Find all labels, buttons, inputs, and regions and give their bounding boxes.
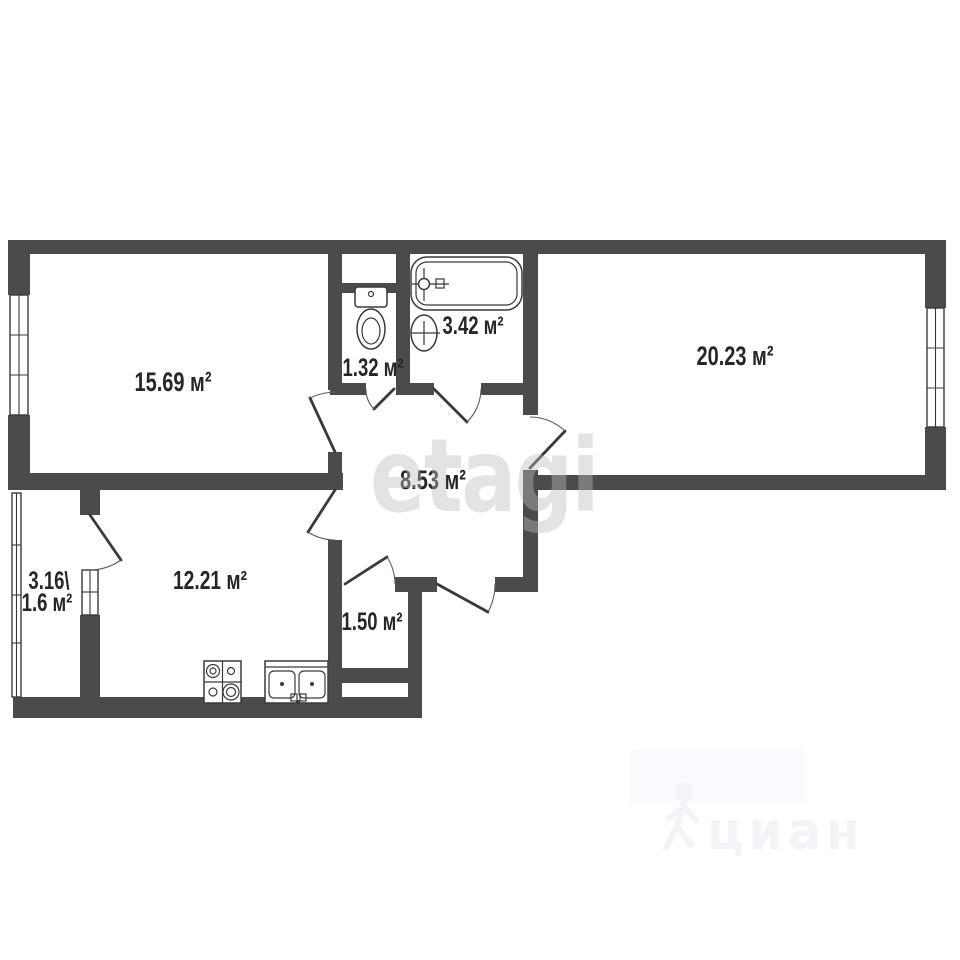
door-kitchen	[308, 490, 335, 540]
room-label-living: 15.69 м²	[135, 367, 212, 398]
toilet-icon	[355, 287, 387, 349]
kitchen-sink-icon	[265, 661, 328, 704]
watermark-cian-block	[630, 750, 805, 803]
wall-segment	[523, 240, 538, 415]
door-entry	[437, 584, 495, 612]
floor-plan: 15.69 м² 20.23 м² 1.32 м² 3.42 м² 8.53 м…	[0, 0, 960, 960]
watermark-etagi: etagi	[370, 416, 598, 535]
wall-segment	[925, 427, 946, 490]
wash-basin-icon	[411, 315, 440, 351]
room-label-wc: 1.32 м²	[343, 353, 404, 381]
wall-segment	[8, 240, 30, 295]
window-symbol-balcony-glazing	[12, 493, 21, 697]
wall-segment	[80, 615, 100, 718]
room-label-balcony-reduced: 1.6 м²	[22, 588, 73, 616]
window-symbol-kitchen	[82, 570, 98, 615]
wall-segment	[342, 668, 408, 683]
watermark-cian: циан	[630, 750, 865, 861]
floor-plan-drawing: 15.69 м² 20.23 м² 1.32 м² 3.42 м² 8.53 м…	[0, 0, 960, 960]
window-symbol-living	[10, 295, 28, 415]
wall-segment	[328, 540, 342, 718]
stove-icon	[204, 661, 241, 703]
wall-segment	[8, 415, 30, 475]
room-label-storage: 1.50 м²	[342, 607, 403, 635]
door-balcony	[90, 515, 121, 570]
bathtub-icon	[411, 257, 522, 310]
door-living-room	[310, 392, 335, 452]
wall-segment	[8, 473, 343, 490]
door-wc	[366, 389, 394, 409]
room-label-bathroom: 3.42 м²	[443, 311, 504, 339]
wall-segment	[925, 240, 946, 308]
wall-segment	[408, 590, 422, 718]
wall-segment	[328, 452, 342, 488]
door-storage	[345, 557, 395, 584]
room-label-bedroom: 20.23 м²	[697, 341, 774, 372]
wall-segment	[395, 577, 437, 592]
wall-segment	[10, 240, 946, 254]
watermark-cian-text: циан	[707, 801, 865, 861]
wall-segment	[410, 383, 434, 395]
wall-segment	[80, 490, 100, 515]
window-symbol-bedroom	[927, 308, 944, 427]
wall-segment	[328, 254, 342, 390]
room-label-kitchen: 12.21 м²	[173, 565, 247, 595]
